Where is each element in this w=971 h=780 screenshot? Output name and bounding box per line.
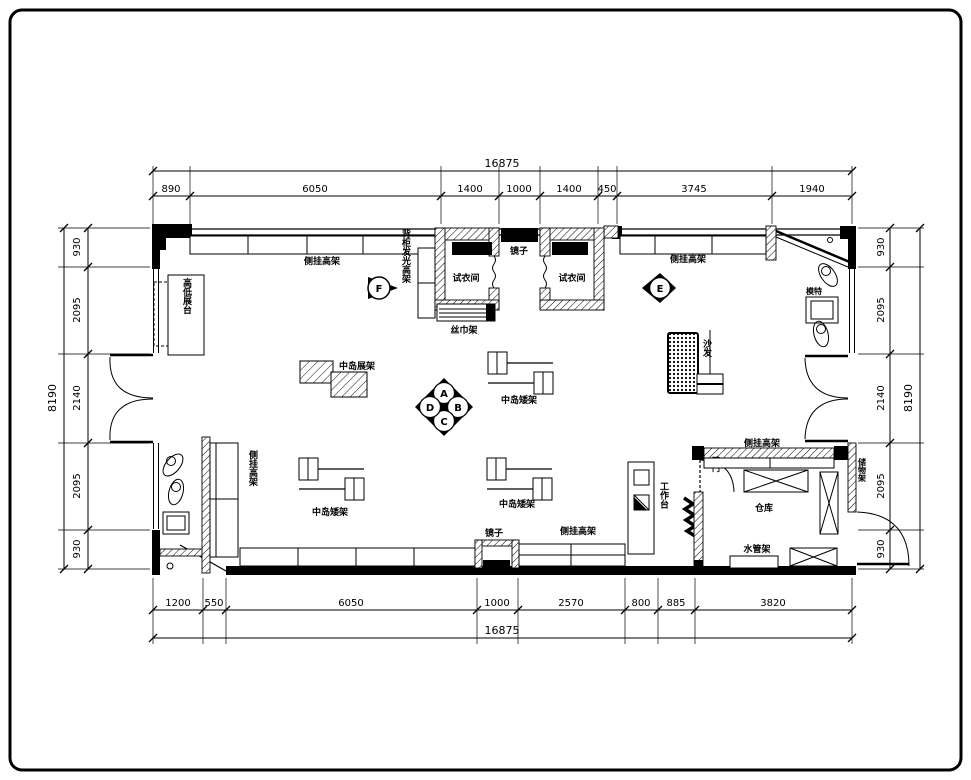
storage-x-rack-bottom xyxy=(790,548,837,566)
mirror-between-fitting-rooms: 镜子 xyxy=(501,228,538,257)
label-mannequin: 模特 xyxy=(806,286,822,296)
island-rack-2: 中岛矮架 xyxy=(299,458,364,518)
label-side-rack-top-left: 侧挂高架 xyxy=(304,255,340,267)
dim-bottom-3: 1000 xyxy=(484,598,509,609)
label-fitting-room-1: 试衣间 xyxy=(452,272,479,284)
label-pipe-rack: 水管架 xyxy=(743,543,770,555)
mannequin-icon xyxy=(172,483,181,492)
mirror-stand-bottom: 镜子 xyxy=(475,527,519,568)
mannequin-icon xyxy=(817,325,826,334)
dim-bottom-2: 6050 xyxy=(338,598,363,609)
dim-left-1: 2095 xyxy=(72,297,83,322)
elevation-marker-f: F xyxy=(368,277,398,299)
label-backlit-rack: 背柜发光高架 xyxy=(400,228,412,284)
left-entry-double-door xyxy=(110,355,153,442)
label-warehouse: 仓库 xyxy=(754,502,773,514)
dim-right-4: 930 xyxy=(876,539,887,558)
top-wall-column xyxy=(766,226,776,260)
label-scarf-rack: 丝巾架 xyxy=(450,324,477,336)
dim-right-0: 930 xyxy=(876,237,887,256)
storage-x-rack-right xyxy=(820,472,838,534)
dim-bottom-6: 885 xyxy=(666,598,685,609)
label-island-rack-3: 中岛矮架 xyxy=(499,498,535,510)
warehouse-right-wall xyxy=(848,443,856,512)
display-corner-bottom-left xyxy=(159,451,189,534)
label-mirror-bottom: 镜子 xyxy=(485,527,503,539)
label-sofa: 沙发 xyxy=(701,339,713,358)
dimension-chain-bottom: 1200 550 6050 1000 2570 800 885 3820 168… xyxy=(149,578,856,644)
label-high-low-platform: 高低展台 xyxy=(181,277,193,315)
display-window-right: 模特 xyxy=(806,260,841,348)
island-display-boxes: 中岛展架 xyxy=(300,360,375,397)
island-rack-1: 中岛矮架 xyxy=(488,352,553,406)
marker-letter-e: E xyxy=(657,284,664,295)
label-side-rack-partition: 侧挂高架 xyxy=(247,449,259,487)
curtain-line xyxy=(544,256,547,288)
fitting-room-1: 试衣间 xyxy=(435,228,499,310)
elevation-marker-e: E xyxy=(642,273,676,303)
dim-top-2: 1400 xyxy=(457,184,482,195)
marker-letter-a: A xyxy=(440,389,448,400)
label-island-display: 中岛展架 xyxy=(339,360,375,372)
dim-bottom-1: 550 xyxy=(204,598,223,609)
dim-right-total: 8190 xyxy=(902,384,915,412)
label-workbench: 工作台 xyxy=(658,481,669,509)
dim-top-7: 1940 xyxy=(799,184,824,195)
dim-top-4: 1400 xyxy=(556,184,581,195)
wall-shelf-bottom-left xyxy=(240,548,475,566)
curtain-line xyxy=(493,256,496,288)
dim-bottom-4: 2570 xyxy=(558,598,583,609)
dim-right-3: 2095 xyxy=(876,473,887,498)
marker-letter-f: F xyxy=(376,284,383,295)
wall-shelf-top-right: 侧挂高架 xyxy=(620,236,766,265)
label-side-rack-warehouse: 侧挂高架 xyxy=(744,437,780,449)
label-storage-rack: 储物架 xyxy=(858,457,867,483)
dim-left-0: 930 xyxy=(72,237,83,256)
dim-left-2: 2140 xyxy=(72,385,83,410)
fitting-room-2: 试衣间 xyxy=(540,228,604,310)
right-double-door xyxy=(805,356,848,441)
label-fitting-room-2: 试衣间 xyxy=(558,272,585,284)
marker-letter-c: C xyxy=(440,417,447,428)
dim-left-4: 930 xyxy=(72,539,83,558)
dimension-chain-right: 930 2095 2140 2095 930 8190 xyxy=(858,224,924,573)
dim-left-total: 8190 xyxy=(46,384,59,412)
demolished-column-scribble xyxy=(684,498,695,536)
floor-plan-canvas: 侧挂高架 侧挂高架 试衣间 试衣间 镜子 丝巾架 背 xyxy=(0,0,971,780)
label-side-rack-bottom: 侧挂高架 xyxy=(560,525,596,537)
dimension-chain-top: 16875 890 6050 1400 1000 1400 450 3745 1… xyxy=(149,157,856,224)
elevation-marker-abcd: A B C D xyxy=(415,378,473,436)
dim-bottom-5: 800 xyxy=(631,598,650,609)
mannequin-icon xyxy=(822,267,831,276)
label-mirror-top: 镜子 xyxy=(510,245,528,257)
dim-top-6: 3745 xyxy=(681,184,706,195)
label-island-rack-1: 中岛矮架 xyxy=(501,394,537,406)
dim-top-3: 1000 xyxy=(506,184,531,195)
island-rack-3: 中岛矮架 xyxy=(487,458,552,510)
storage-x-rack-top xyxy=(744,470,808,492)
dim-right-1: 2095 xyxy=(876,297,887,322)
label-island-rack-2: 中岛矮架 xyxy=(312,506,348,518)
dim-right-2: 2140 xyxy=(876,385,887,410)
dimension-chain-left: 930 2095 2140 2095 930 8190 xyxy=(46,224,150,573)
dim-top-0: 890 xyxy=(161,184,180,195)
label-side-rack-top-right: 侧挂高架 xyxy=(670,253,706,265)
dim-left-3: 2095 xyxy=(72,473,83,498)
dim-bottom-total: 16875 xyxy=(485,624,520,637)
pipe-rack-table xyxy=(730,556,778,568)
scarf-rack: 丝巾架 xyxy=(437,304,495,336)
dim-top-total: 16875 xyxy=(485,157,520,170)
dim-bottom-0: 1200 xyxy=(165,598,190,609)
workbench: 工作台 xyxy=(628,462,695,554)
dim-bottom-7: 3820 xyxy=(760,598,785,609)
high-low-display-platform: 高低展台 xyxy=(154,275,204,355)
marker-letter-d: D xyxy=(426,403,434,414)
dim-top-1: 6050 xyxy=(302,184,327,195)
warehouse: 侧挂高架 暗门 仓库 水管架 储物架 xyxy=(692,437,867,572)
sofa-area: 沙发 xyxy=(668,330,723,394)
dim-top-5: 450 xyxy=(597,184,616,195)
marker-letter-b: B xyxy=(454,403,462,414)
floor-plan-drawing: 侧挂高架 侧挂高架 试衣间 试衣间 镜子 丝巾架 背 xyxy=(0,0,971,780)
